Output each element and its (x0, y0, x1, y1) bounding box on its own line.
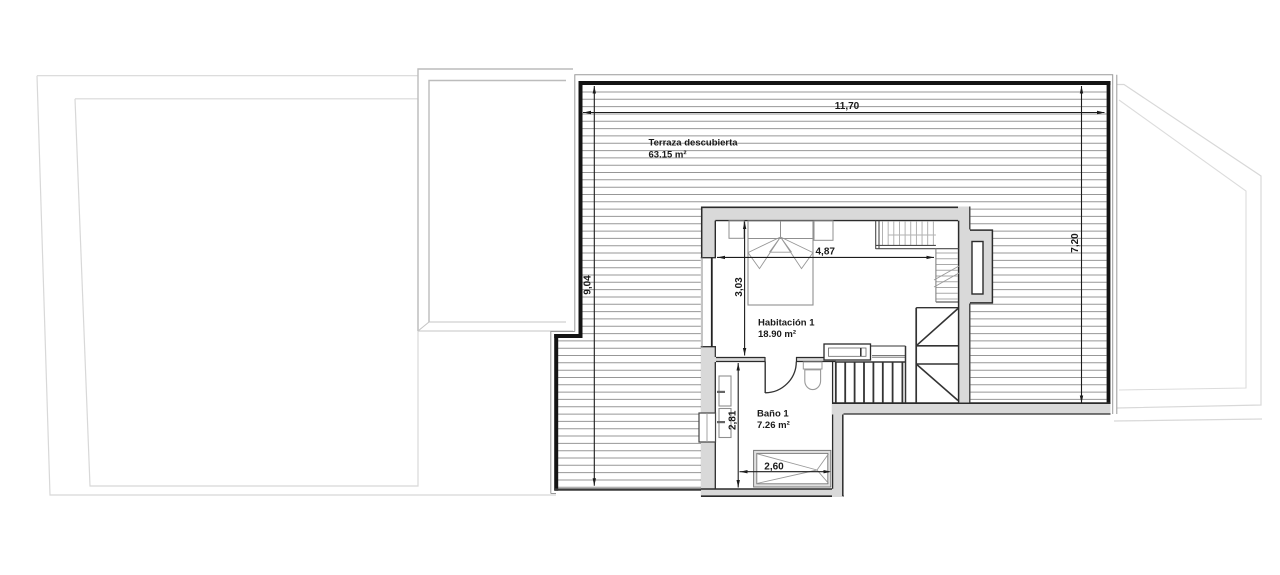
svg-text:11,70: 11,70 (835, 101, 860, 112)
svg-text:3,03: 3,03 (734, 277, 745, 297)
svg-text:2,81: 2,81 (728, 410, 739, 430)
svg-text:Habitación 1: Habitación 1 (758, 318, 815, 329)
svg-text:7,20: 7,20 (1070, 233, 1081, 253)
svg-text:4,87: 4,87 (816, 247, 836, 258)
svg-text:7.26 m²: 7.26 m² (757, 420, 790, 431)
svg-text:18.90 m²: 18.90 m² (758, 329, 796, 340)
svg-text:63.15 m²: 63.15 m² (649, 150, 687, 161)
svg-text:Baño 1: Baño 1 (757, 409, 789, 420)
svg-text:9,04: 9,04 (583, 275, 594, 295)
svg-text:2,60: 2,60 (764, 462, 784, 473)
svg-text:Terraza descubierta: Terraza descubierta (649, 138, 739, 149)
